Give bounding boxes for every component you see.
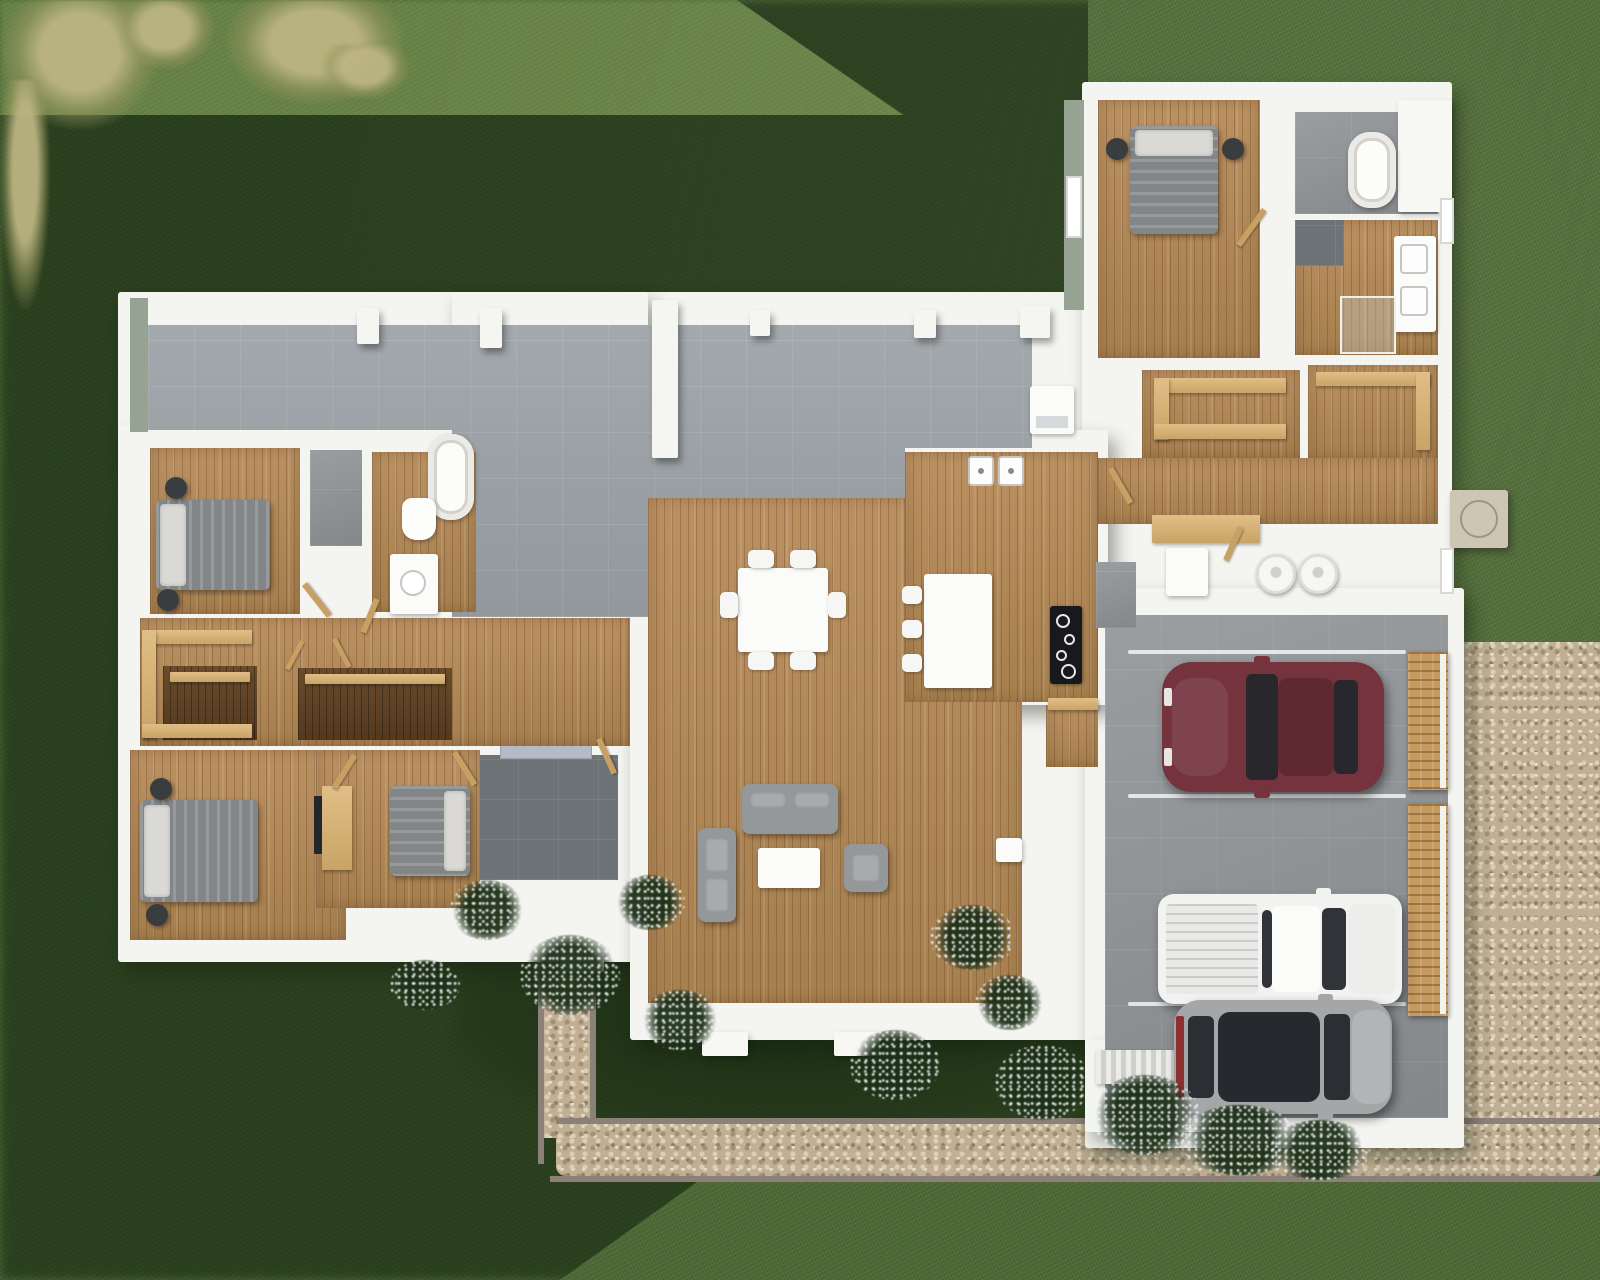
ac-fan: [1460, 500, 1498, 538]
nightstand: [1106, 138, 1128, 160]
bar-stool: [902, 586, 922, 604]
bed-pillows: [160, 504, 186, 586]
bed-bedroom-1: [140, 800, 258, 902]
pergola-beam: [750, 310, 770, 336]
faucet: [1008, 468, 1014, 474]
curb-walkway-bottom: [550, 1176, 1600, 1182]
dining-chair: [790, 550, 816, 568]
suv-rear-glass: [1188, 1016, 1214, 1098]
bath-vanity: [390, 554, 438, 614]
suv-gray: [1174, 1000, 1392, 1114]
vanity-sink: [1400, 286, 1428, 316]
flower-bush: [640, 990, 720, 1050]
master-bathtub: [1348, 132, 1396, 208]
floor-closet-gray: [310, 450, 362, 546]
closet-shelf: [142, 630, 252, 644]
dining-chair: [748, 652, 774, 670]
cooktop: [1050, 606, 1082, 684]
toilet: [402, 498, 436, 540]
flower-bush: [390, 960, 460, 1010]
closet-shelf: [1154, 378, 1286, 393]
closet-shelf: [1416, 372, 1430, 450]
sofa-cushion: [705, 878, 729, 912]
front-door: [500, 745, 592, 759]
coffee-table: [758, 848, 820, 888]
bed-bedroom-3: [156, 500, 270, 590]
suv-windshield: [1324, 1014, 1350, 1100]
vanity-sink: [1400, 244, 1428, 274]
garage-door-track: [1440, 806, 1446, 1014]
closet-rod: [305, 674, 445, 684]
suv-roof-glass: [1218, 1012, 1320, 1102]
kitchen-island: [924, 574, 992, 688]
dining-chair: [790, 652, 816, 670]
burner: [1061, 664, 1076, 679]
west-wall-face: [130, 298, 148, 432]
bed-master: [1130, 126, 1218, 234]
dining-chair: [748, 550, 774, 568]
flower-bush: [615, 875, 685, 930]
window-stub: [1440, 198, 1454, 244]
nightstand: [150, 778, 172, 800]
dining-chair: [828, 592, 846, 618]
dining-chair: [720, 592, 738, 618]
floor-hallway-right: [1098, 458, 1438, 524]
dried-grass-patch: [320, 45, 410, 100]
nightstand: [1222, 138, 1244, 160]
flower-bush: [930, 905, 1015, 970]
car-red-sedan: [1162, 662, 1384, 792]
armchair: [844, 844, 888, 892]
sofa-short: [698, 828, 736, 922]
window-stub: [1440, 548, 1454, 594]
dresser: [322, 786, 352, 870]
flower-bush: [995, 1045, 1090, 1120]
car-rear-glass: [1334, 680, 1358, 774]
flower-bush: [520, 935, 620, 1015]
car-headlight: [1164, 748, 1172, 766]
car-headlight: [1164, 688, 1172, 706]
floor-mudroom-pantry: [1046, 705, 1098, 767]
sofa-long: [742, 784, 838, 834]
car-hood-shine: [1172, 678, 1228, 776]
right-wing-west-window: [1066, 176, 1082, 238]
vanity-sink: [400, 570, 426, 596]
pergola-beam: [480, 308, 502, 348]
flower-bush: [850, 1030, 940, 1100]
pergola-beam-long: [652, 300, 678, 458]
truck-mirror: [1316, 888, 1331, 897]
garage-door-track: [1440, 654, 1446, 788]
master-bath-wc-room: [1398, 100, 1452, 212]
truck-white-pickup: [1158, 894, 1402, 1004]
garage-door-wood: [1408, 804, 1448, 1016]
nightstand: [165, 477, 187, 499]
suv-hood: [1352, 1010, 1390, 1104]
suv-mirror: [1318, 1111, 1333, 1120]
truck-rear-glass: [1262, 910, 1272, 988]
shower-glass: [1340, 296, 1396, 354]
bed-pillows: [144, 805, 170, 897]
washer: [1256, 554, 1296, 594]
utility-box: [996, 838, 1022, 862]
pergola-beam: [1020, 306, 1050, 338]
dried-grass-patch: [0, 80, 50, 310]
floor-plan-scene: [0, 0, 1600, 1280]
dried-grass-patch: [115, 0, 215, 70]
pantry-shelf: [1048, 698, 1098, 710]
car-windshield: [1246, 674, 1278, 780]
pergola-beam: [357, 308, 379, 344]
burner: [1056, 650, 1067, 661]
sofa-cushion: [705, 838, 729, 872]
flower-bush: [975, 975, 1045, 1030]
pergola-beam: [914, 310, 936, 338]
dining-table: [738, 568, 828, 652]
driveway-cobblestone: [1464, 642, 1600, 1128]
suv-mirror: [1318, 994, 1333, 1003]
closet-shelf: [1154, 424, 1286, 439]
bed-pillows: [444, 791, 466, 871]
closet-rod: [170, 672, 250, 682]
parking-bay-line: [1128, 650, 1406, 654]
tv-panel: [314, 796, 322, 854]
mudroom-bench: [1152, 515, 1260, 543]
flower-bush: [1270, 1120, 1370, 1180]
floor-garage-entry: [1096, 562, 1136, 628]
garage-door-wood: [1408, 652, 1448, 790]
dryer: [1298, 554, 1338, 594]
closet-shelf: [142, 630, 156, 738]
truck-bed: [1166, 904, 1258, 994]
armchair-cushion: [852, 854, 880, 882]
sofa-cushion: [750, 792, 786, 808]
flower-bush: [450, 880, 525, 940]
burner: [1064, 634, 1075, 645]
bar-stool: [902, 654, 922, 672]
entry-porch-floor: [478, 755, 618, 880]
truck-windshield: [1322, 908, 1346, 990]
water-heater: [1166, 548, 1208, 596]
closet-shelf: [1316, 372, 1430, 386]
fridge-front-panel: [1036, 416, 1068, 428]
car-roof: [1278, 678, 1334, 776]
floor-shower-corner: [1295, 220, 1343, 266]
sofa-cushion: [794, 792, 830, 808]
bar-stool: [902, 620, 922, 638]
truck-cab-roof: [1272, 906, 1320, 992]
faucet: [978, 468, 984, 474]
double-vanity: [1394, 236, 1436, 332]
bed-bedroom-2: [390, 786, 470, 876]
truck-hood: [1348, 904, 1396, 994]
outdoor-fridge-unit: [1030, 386, 1074, 434]
burner: [1056, 614, 1070, 628]
nightstand: [146, 904, 168, 926]
bed-pillows: [1135, 130, 1213, 156]
closet-shelf: [142, 724, 252, 738]
car-mirror: [1254, 656, 1270, 665]
nightstand: [157, 589, 179, 611]
car-mirror: [1254, 789, 1270, 798]
ac-unit: [1450, 490, 1508, 548]
